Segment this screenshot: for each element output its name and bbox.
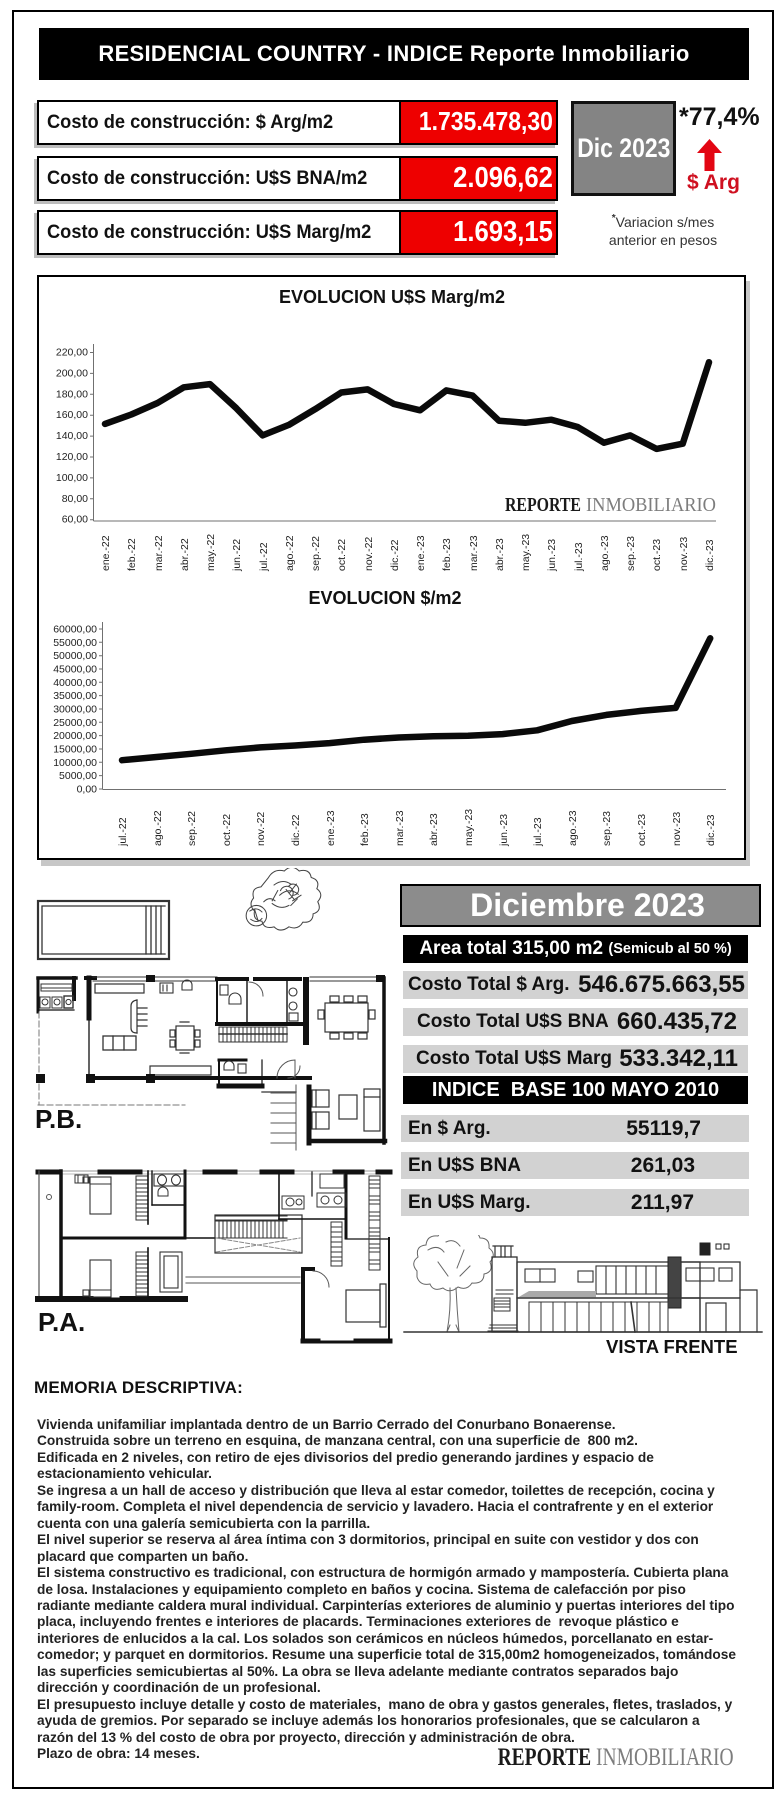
svg-text:abr.-23: abr.-23 (494, 538, 506, 571)
svg-text:may.-23: may.-23 (520, 534, 532, 571)
svg-text:100,00: 100,00 (56, 472, 88, 484)
svg-text:180,00: 180,00 (56, 388, 88, 400)
svg-text:35000,00: 35000,00 (53, 690, 97, 702)
svg-text:REPORTE: REPORTE (505, 495, 581, 516)
svg-text:jul.-22: jul.-22 (258, 542, 270, 572)
svg-text:may.-22: may.-22 (205, 534, 217, 571)
svg-text:P.B.: P.B. (35, 1104, 82, 1134)
svg-text:60000,00: 60000,00 (53, 624, 97, 636)
svg-text:ago.-22: ago.-22 (152, 810, 164, 846)
svg-text:25000,00: 25000,00 (53, 717, 97, 729)
svg-text:45000,00: 45000,00 (53, 664, 97, 676)
svg-text:15000,00: 15000,00 (53, 744, 97, 756)
svg-text:oct.-23: oct.-23 (636, 814, 648, 846)
svg-text:sep.-22: sep.-22 (310, 536, 322, 571)
svg-text:oct.-22: oct.-22 (221, 814, 233, 846)
svg-text:50000,00: 50000,00 (53, 650, 97, 662)
svg-text:VISTA FRENTE: VISTA FRENTE (606, 1336, 738, 1357)
svg-text:nov.-22: nov.-22 (255, 812, 267, 846)
svg-text:sep.-23: sep.-23 (601, 811, 613, 846)
svg-text:oct.-23: oct.-23 (651, 539, 663, 571)
svg-text:INMOBILIARIO: INMOBILIARIO (586, 495, 716, 516)
svg-text:EVOLUCION U$S Marg/m2: EVOLUCION U$S Marg/m2 (279, 287, 505, 307)
svg-text:140,00: 140,00 (56, 430, 88, 442)
svg-text:abr.-22: abr.-22 (179, 538, 191, 571)
svg-text:30000,00: 30000,00 (53, 704, 97, 716)
svg-text:dic.-22: dic.-22 (389, 539, 401, 571)
svg-text:EVOLUCION $/m2: EVOLUCION $/m2 (308, 588, 461, 608)
svg-text:jun.-23: jun.-23 (498, 814, 510, 847)
svg-text:dic.-22: dic.-22 (290, 814, 302, 846)
svg-text:feb.-22: feb.-22 (126, 538, 138, 571)
svg-text:nov.-22: nov.-22 (363, 537, 375, 571)
svg-text:55000,00: 55000,00 (53, 637, 97, 649)
svg-text:nov.-23: nov.-23 (678, 537, 690, 571)
svg-text:mar.-22: mar.-22 (153, 535, 165, 571)
svg-text:mar.-23: mar.-23 (394, 810, 406, 846)
svg-text:feb.-23: feb.-23 (359, 813, 371, 846)
svg-text:0,00: 0,00 (77, 784, 98, 796)
svg-text:may.-23: may.-23 (463, 809, 475, 846)
svg-text:P.A.: P.A. (38, 1307, 85, 1337)
svg-text:5000,00: 5000,00 (59, 770, 97, 782)
svg-text:60,00: 60,00 (62, 514, 88, 526)
svg-text:ene.-23: ene.-23 (325, 810, 337, 846)
svg-text:40000,00: 40000,00 (53, 677, 97, 689)
svg-text:ago.-23: ago.-23 (599, 535, 611, 571)
svg-text:10000,00: 10000,00 (53, 757, 97, 769)
svg-text:ago.-23: ago.-23 (567, 810, 579, 846)
svg-text:jun.-23: jun.-23 (546, 539, 558, 572)
svg-text:dic.-23: dic.-23 (705, 814, 717, 846)
svg-text:jul.-23: jul.-23 (573, 542, 585, 572)
svg-text:ene.-22: ene.-22 (100, 535, 112, 571)
svg-text:mar.-23: mar.-23 (468, 535, 480, 571)
svg-text:sep.-22: sep.-22 (186, 811, 198, 846)
svg-text:200,00: 200,00 (56, 367, 88, 379)
svg-text:nov.-23: nov.-23 (671, 812, 683, 846)
svg-text:ago.-22: ago.-22 (284, 535, 296, 571)
svg-text:220,00: 220,00 (56, 347, 88, 359)
svg-text:sep.-23: sep.-23 (625, 536, 637, 571)
svg-text:feb.-23: feb.-23 (441, 538, 453, 571)
svg-text:20000,00: 20000,00 (53, 730, 97, 742)
svg-text:jul.-23: jul.-23 (532, 817, 544, 847)
svg-text:dic.-23: dic.-23 (704, 539, 716, 571)
svg-text:80,00: 80,00 (62, 493, 88, 505)
svg-text:160,00: 160,00 (56, 409, 88, 421)
svg-text:jun.-22: jun.-22 (231, 539, 243, 572)
svg-text:ene.-23: ene.-23 (415, 535, 427, 571)
svg-text:120,00: 120,00 (56, 451, 88, 463)
svg-text:oct.-22: oct.-22 (336, 539, 348, 571)
svg-text:jul.-22: jul.-22 (117, 817, 129, 847)
svg-text:abr.-23: abr.-23 (428, 813, 440, 846)
